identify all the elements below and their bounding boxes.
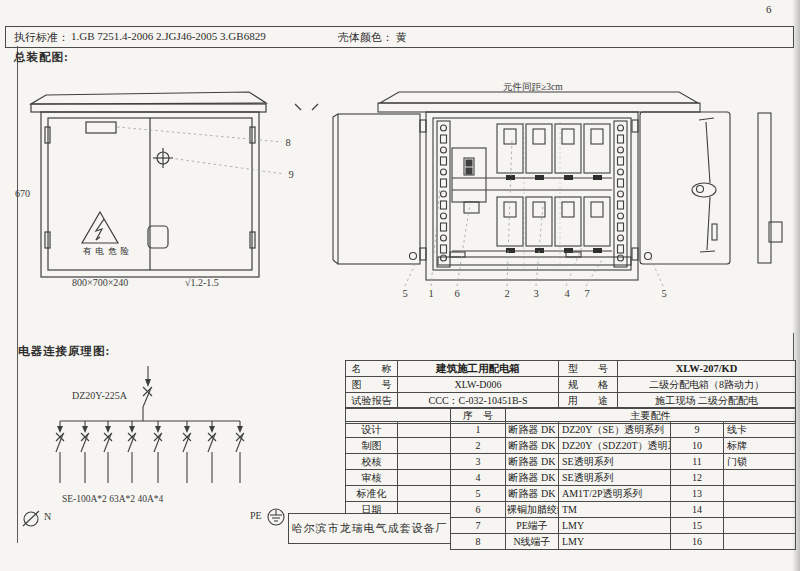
drawing-number: XLW-D006 [398,377,559,393]
part-name2 [724,534,796,550]
part-spec: DZ20Y（SE）透明系列 [559,422,671,438]
part-name: N线端子 [506,534,559,550]
side-panel [758,113,782,263]
info-label: 型 号 [559,361,618,377]
part-no: 8 [451,534,506,550]
callout-2: 2 [500,288,514,299]
part-no2: 14 [671,502,724,518]
spec-table-info: 名 称 建筑施工用配电箱 型 号 XLW-207/KD 图 号 XLW-D006… [345,360,796,409]
part-name2: 标牌 [724,438,796,454]
part-spec: TM [559,502,671,518]
callout-1: 1 [424,288,438,299]
specification: 二级分配电箱（8路动力） [618,377,796,393]
part-spec: DZ20Y（SDZ20T）透明系列 [559,438,671,454]
cabinet-body [426,112,638,280]
blank-cell [398,438,451,454]
roof-top [31,92,266,104]
parts-row: 校核3断路器 DKSE透明系列11门锁 [346,454,796,470]
nameplate [86,122,116,133]
blank-cell [398,486,451,502]
branch-switch [208,421,216,483]
callout-8: 8 [281,137,295,148]
main-breaker-label: DZ20Y-225A [72,390,127,401]
model-number: XLW-207/KD [618,361,796,377]
part-spec: SE透明系列 [559,454,671,470]
part-name2: 门锁 [724,454,796,470]
part-name: 断路器 DK [506,438,559,454]
left-door-open [333,114,420,264]
part-no2: 13 [671,486,724,502]
part-name2 [724,470,796,486]
open-cabinet-view [333,92,782,280]
right-door-open [640,112,730,264]
part-no: 1 [451,422,506,438]
drawing-sheet: 6 执行标准： 1.GB 7251.4-2006 2.JGJ46-2005 3.… [0,0,800,571]
terminal-rail [438,252,631,265]
breaker-row-top [497,124,610,173]
pe-label: PE [250,510,262,521]
parts-row: 审核4断路器 DKSE透明系列12 [346,470,796,486]
part-name2 [724,486,796,502]
electric-danger-icon [82,212,118,243]
roof-fascia [378,103,700,112]
part-name2 [724,518,796,534]
branch-switch [183,421,191,483]
callout-5b: 5 [657,288,671,299]
size-dimension: 800×700×240 [72,277,128,288]
product-name: 建筑施工用配电箱 [398,361,559,377]
part-no: 3 [451,454,506,470]
part-spec: LMY [559,534,671,550]
roof-top [380,92,698,103]
mounting-rail-right [614,121,627,267]
callout-9: 9 [284,169,298,180]
part-name: 裸铜加腊绞线 [506,502,559,518]
parts-row: 设计1断路器 DKDZ20Y（SE）透明系列9线卡 [346,422,796,438]
info-row: 图 号 XLW-D006 规 格 二级分配电箱（8路动力） [346,377,796,393]
callout-7: 7 [580,288,594,299]
manufacturer-box: 哈尔滨市龙瑞电气成套设备厂 [288,513,451,544]
neutral-label: N [44,511,51,522]
height-dimension: 670 [15,188,30,199]
callout-4: 4 [560,288,574,299]
branch-circuits [56,421,244,483]
branch-switch [81,421,89,483]
part-name: PE端子 [506,518,559,534]
part-no: 6 [451,502,506,518]
blank-cell [398,422,451,438]
branch-switch [128,421,136,483]
part-no: 4 [451,470,506,486]
branch-spec-label: SE-100A*2 63A*2 40A*4 [62,494,163,504]
part-name: 断路器 DK [506,422,559,438]
callout-3: 3 [529,288,543,299]
part-no: 5 [451,486,506,502]
part-no: 7 [451,518,506,534]
part-name2: 线卡 [724,422,796,438]
callout-6: 6 [450,288,464,299]
part-no2: 10 [671,438,724,454]
danger-warning-text: 有电危险 [73,247,143,256]
info-row: 名 称 建筑施工用配电箱 型 号 XLW-207/KD [346,361,796,377]
part-name: 断路器 DK [506,454,559,470]
branch-switch [56,421,64,483]
mounting-rail-left [437,121,450,267]
part-no: 2 [451,438,506,454]
part-no2: 15 [671,518,724,534]
parts-row: 制图2断路器 DKDZ20Y（SDZ20T）透明系列10标牌 [346,438,796,454]
branch-switch [154,421,162,483]
callout-5a: 5 [398,288,412,299]
branch-switch [104,421,112,483]
spacing-note: 元件间距≥3cm [503,82,563,92]
neutral-symbol-icon [23,511,39,526]
main-breaker [452,148,486,213]
breaker-row-bottom [497,197,610,246]
surface-finish-mark: √1.2-1.5 [185,277,219,288]
part-no2: 11 [671,454,724,470]
door-lock [148,226,168,248]
part-spec: LMY [559,518,671,534]
part-spec: SE透明系列 [559,470,671,486]
cabinet-inner-frame [433,118,631,270]
sign-label: 校核 [346,454,398,470]
part-name: 断路器 DK [506,470,559,486]
blank-cell [398,454,451,470]
info-label: 名 称 [346,361,398,377]
part-name2 [724,502,796,518]
sign-label: 制图 [346,438,398,454]
branch-switch [236,421,244,483]
blank-cell [398,470,451,486]
sign-label: 设计 [346,422,398,438]
earth-symbol-icon [268,509,284,525]
sign-label: 标准化 [346,486,398,502]
part-name: 断路器 DK [506,486,559,502]
parts-row: 标准化5断路器 DKAM1T/2P透明系列13 [346,486,796,502]
info-label: 规 格 [559,377,618,393]
part-no2: 12 [671,470,724,486]
sign-label: 审核 [346,470,398,486]
roof-fascia [31,104,266,112]
info-label: 图 号 [346,377,398,393]
part-no2: 9 [671,422,724,438]
part-spec: AM1T/2P透明系列 [559,486,671,502]
part-no2: 16 [671,534,724,550]
